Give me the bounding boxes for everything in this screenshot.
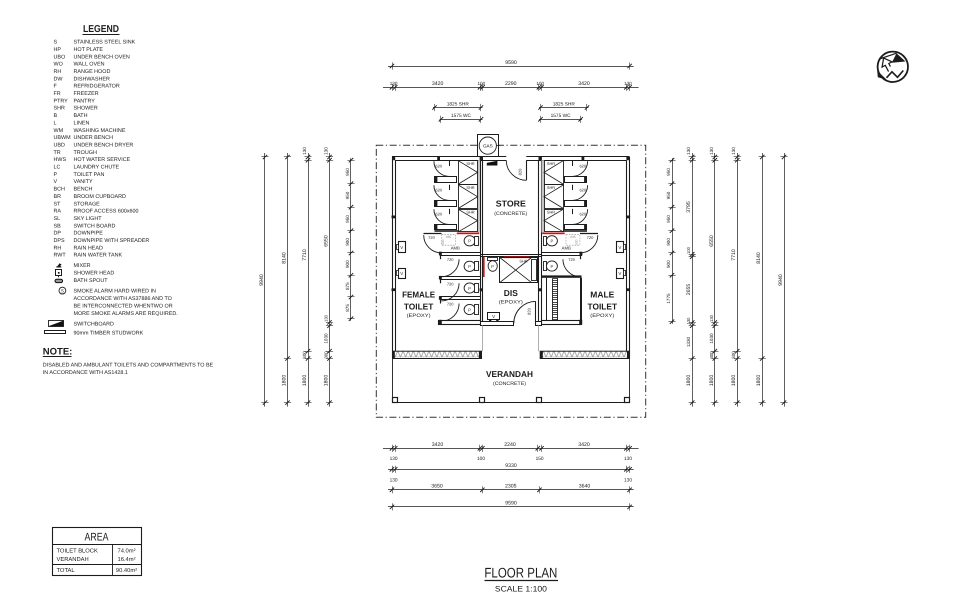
svg-text:LEGEND: LEGEND <box>83 24 119 35</box>
svg-text:3795: 3795 <box>686 201 692 213</box>
svg-text:9590: 9590 <box>505 60 517 66</box>
svg-text:(EPOXY): (EPOXY) <box>499 300 523 306</box>
svg-text:V: V <box>618 245 621 250</box>
svg-text:STORAGE: STORAGE <box>74 201 101 207</box>
svg-text:ST: ST <box>54 201 62 207</box>
svg-text:BCH: BCH <box>54 187 65 193</box>
svg-text:RH: RH <box>54 69 62 75</box>
svg-text:950: 950 <box>666 191 671 199</box>
svg-text:130: 130 <box>390 477 398 483</box>
svg-text:900: 900 <box>345 260 350 268</box>
svg-text:P: P <box>551 264 554 269</box>
svg-text:DOWNPIPE WITH SPREADER: DOWNPIPE WITH SPREADER <box>74 238 150 244</box>
svg-text:820: 820 <box>517 168 522 175</box>
svg-text:150: 150 <box>536 456 544 462</box>
svg-text:(CONCRETE): (CONCRETE) <box>493 381 526 387</box>
svg-text:BENCH: BENCH <box>74 187 93 193</box>
svg-text:620: 620 <box>435 163 442 168</box>
svg-text:100: 100 <box>477 81 485 86</box>
svg-text:NOTE:: NOTE: <box>43 347 73 358</box>
svg-text:(EPOXY): (EPOXY) <box>590 313 614 319</box>
svg-text:SHR: SHR <box>547 185 555 190</box>
svg-text:LC: LC <box>54 165 61 171</box>
svg-text:SHR: SHR <box>54 106 65 112</box>
svg-text:V: V <box>400 245 403 250</box>
svg-text:DISABLED AND AMBULANT TOILETS: DISABLED AND AMBULANT TOILETS AND COMPAR… <box>43 362 214 368</box>
svg-text:2290: 2290 <box>505 81 517 87</box>
svg-text:900: 900 <box>441 239 445 245</box>
svg-text:HOT WATER SERVICE: HOT WATER SERVICE <box>74 157 131 163</box>
svg-text:7710: 7710 <box>731 249 737 261</box>
svg-text:SHOWER HEAD: SHOWER HEAD <box>74 270 115 276</box>
svg-text:BROOM CUPBOARD: BROOM CUPBOARD <box>74 194 127 200</box>
svg-text:GAS: GAS <box>483 144 493 149</box>
svg-text:TOILET: TOILET <box>404 302 434 312</box>
svg-text:9590: 9590 <box>505 501 517 507</box>
svg-text:DW: DW <box>54 76 64 82</box>
svg-text:1800: 1800 <box>686 375 692 387</box>
svg-text:SB: SB <box>54 223 62 229</box>
svg-text:SHR: SHR <box>466 161 474 166</box>
svg-text:300: 300 <box>324 351 329 359</box>
svg-text:REFRIDGERATOR: REFRIDGERATOR <box>74 84 120 90</box>
svg-text:DISHWASHER: DISHWASHER <box>74 76 110 82</box>
svg-text:1800: 1800 <box>282 375 288 387</box>
svg-text:1800: 1800 <box>731 375 737 387</box>
svg-text:BE INTERCONNECTED WHENTWO OR: BE INTERCONNECTED WHENTWO OR <box>74 303 173 309</box>
svg-text:950: 950 <box>345 215 350 223</box>
svg-text:LAUNDRY CHUTE: LAUNDRY CHUTE <box>74 165 120 171</box>
svg-text:635: 635 <box>570 235 576 239</box>
svg-text:RA: RA <box>54 209 62 215</box>
svg-text:HOT PLATE: HOT PLATE <box>74 47 104 53</box>
svg-text:RAIN HEAD: RAIN HEAD <box>74 245 103 251</box>
svg-text:720: 720 <box>447 257 454 262</box>
svg-text:1775: 1775 <box>666 293 671 304</box>
svg-text:AREA: AREA <box>85 531 110 543</box>
svg-text:720: 720 <box>568 257 575 262</box>
svg-text:720: 720 <box>447 302 454 307</box>
svg-text:300: 300 <box>302 351 307 359</box>
svg-text:1330: 1330 <box>686 336 691 347</box>
svg-text:STORE: STORE <box>496 199 526 209</box>
svg-text:620: 620 <box>435 211 442 216</box>
svg-text:8140: 8140 <box>756 252 762 264</box>
svg-text:9940: 9940 <box>778 274 784 286</box>
svg-text:P: P <box>491 264 494 269</box>
svg-text:VERANDAH: VERANDAH <box>486 369 533 379</box>
svg-text:900: 900 <box>666 238 671 246</box>
svg-text:130: 130 <box>390 81 398 86</box>
svg-text:620: 620 <box>435 187 442 192</box>
svg-text:820: 820 <box>527 307 532 314</box>
svg-text:1825 SHR: 1825 SHR <box>447 101 470 107</box>
svg-text:WO: WO <box>54 62 63 68</box>
svg-text:HP: HP <box>54 47 62 53</box>
svg-text:P: P <box>54 172 58 178</box>
svg-text:8140: 8140 <box>282 252 288 264</box>
svg-text:V: V <box>492 314 495 319</box>
svg-text:SMOKE ALARM HARD WIRED IN: SMOKE ALARM HARD WIRED IN <box>74 288 156 294</box>
svg-text:6550: 6550 <box>709 235 715 247</box>
svg-text:1030: 1030 <box>709 333 714 344</box>
svg-text:(CONCRETE): (CONCRETE) <box>494 211 527 217</box>
svg-text:130: 130 <box>686 317 691 325</box>
svg-text:900: 900 <box>666 260 671 268</box>
svg-text:130: 130 <box>686 147 691 155</box>
svg-text:620: 620 <box>579 163 586 168</box>
svg-text:V: V <box>400 271 403 276</box>
svg-text:SHR: SHR <box>466 185 474 190</box>
svg-text:TOILET BLOCK: TOILET BLOCK <box>57 547 98 554</box>
svg-text:WALL OVEN: WALL OVEN <box>74 62 105 68</box>
svg-text:875: 875 <box>345 304 350 312</box>
svg-text:FR: FR <box>54 91 61 97</box>
svg-text:130: 130 <box>624 477 632 483</box>
svg-text:VANITY: VANITY <box>74 179 93 185</box>
svg-text:P: P <box>551 239 554 244</box>
svg-text:BATH: BATH <box>74 113 88 119</box>
svg-text:SHR: SHR <box>547 210 555 215</box>
svg-text:RANGE HOOD: RANGE HOOD <box>74 69 111 75</box>
svg-text:130: 130 <box>324 314 329 322</box>
svg-text:TOILET PAN: TOILET PAN <box>74 172 105 178</box>
svg-text:2305: 2305 <box>505 484 517 490</box>
svg-text:RWT: RWT <box>54 253 67 259</box>
svg-text:130: 130 <box>709 147 714 155</box>
svg-text:VERANDAH: VERANDAH <box>57 557 89 563</box>
svg-text:100: 100 <box>477 456 485 462</box>
svg-text:V: V <box>54 179 58 185</box>
svg-text:STAINLESS STEEL SINK: STAINLESS STEEL SINK <box>74 40 136 46</box>
svg-text:130: 130 <box>624 81 632 86</box>
svg-text:BR: BR <box>54 194 62 200</box>
svg-text:SHR: SHR <box>547 161 555 166</box>
svg-text:UNDER BENCH OVEN: UNDER BENCH OVEN <box>74 54 130 60</box>
svg-text:B: B <box>54 113 58 119</box>
svg-text:BATH SPOUT: BATH SPOUT <box>74 278 109 284</box>
svg-text:1030: 1030 <box>324 333 329 344</box>
svg-text:3420: 3420 <box>432 442 444 448</box>
svg-text:620: 620 <box>579 187 586 192</box>
svg-text:UNDER BENCH: UNDER BENCH <box>74 135 114 141</box>
svg-text:900: 900 <box>345 238 350 246</box>
svg-text:300: 300 <box>709 351 714 359</box>
svg-text:1575 WC: 1575 WC <box>551 113 572 119</box>
svg-text:IN ACCORDANCE WITH AS1428.1: IN ACCORDANCE WITH AS1428.1 <box>43 370 128 376</box>
svg-text:950: 950 <box>345 191 350 199</box>
svg-text:720: 720 <box>587 235 594 240</box>
svg-text:SCALE 1:100: SCALE 1:100 <box>495 584 548 593</box>
svg-text:90.40m²: 90.40m² <box>116 567 137 574</box>
svg-text:SHOWER: SHOWER <box>74 106 98 112</box>
svg-text:3420: 3420 <box>432 81 444 87</box>
svg-text:1575 WC: 1575 WC <box>451 113 472 119</box>
svg-text:SKY LIGHT: SKY LIGHT <box>74 216 103 222</box>
svg-text:MALE: MALE <box>590 290 614 300</box>
svg-text:HWS: HWS <box>54 157 67 163</box>
svg-text:1800: 1800 <box>709 375 715 387</box>
svg-text:P: P <box>468 307 471 312</box>
svg-text:(EPOXY): (EPOXY) <box>407 313 431 319</box>
svg-text:RH: RH <box>54 245 62 251</box>
svg-text:FLOOR PLAN: FLOOR PLAN <box>484 564 557 580</box>
svg-text:720: 720 <box>428 235 435 240</box>
svg-text:9940: 9940 <box>259 274 265 286</box>
svg-text:SWITCH BOARD: SWITCH BOARD <box>74 223 116 229</box>
svg-text:130: 130 <box>709 314 714 322</box>
svg-text:MIXER: MIXER <box>74 263 91 269</box>
svg-text:SHR: SHR <box>519 259 527 264</box>
svg-text:TOILET: TOILET <box>588 302 618 312</box>
svg-text:WASHING MACHINE: WASHING MACHINE <box>74 128 126 134</box>
svg-text:UBD: UBD <box>54 143 65 149</box>
svg-text:635: 635 <box>446 235 452 239</box>
svg-text:UBO: UBO <box>54 54 66 60</box>
svg-text:S: S <box>61 288 64 293</box>
svg-text:SHR: SHR <box>466 210 474 215</box>
svg-text:PTRY: PTRY <box>54 98 69 104</box>
svg-text:P: P <box>468 264 471 269</box>
svg-text:3420: 3420 <box>578 442 590 448</box>
svg-text:P: P <box>468 239 471 244</box>
svg-text:9330: 9330 <box>505 463 517 469</box>
svg-text:3420: 3420 <box>578 81 590 87</box>
svg-text:1800: 1800 <box>756 375 762 387</box>
svg-text:3640: 3640 <box>579 484 591 490</box>
svg-text:90mm TIMBER STUDWORK: 90mm TIMBER STUDWORK <box>74 330 144 336</box>
svg-text:7710: 7710 <box>302 249 308 261</box>
svg-text:UBWM: UBWM <box>54 135 72 141</box>
svg-text:P: P <box>468 286 471 291</box>
svg-text:620: 620 <box>579 211 586 216</box>
svg-text:130: 130 <box>624 456 632 462</box>
svg-text:130: 130 <box>302 147 307 155</box>
svg-text:100: 100 <box>536 81 544 86</box>
svg-text:720: 720 <box>447 281 454 286</box>
svg-text:ACCORDANCE WITH AS37886 AND TO: ACCORDANCE WITH AS37886 AND TO <box>74 296 172 302</box>
svg-text:1825 SHR: 1825 SHR <box>553 101 576 107</box>
svg-text:RAIN WATER TANK: RAIN WATER TANK <box>74 253 123 259</box>
svg-text:16.4m²: 16.4m² <box>117 556 135 563</box>
svg-text:130: 130 <box>324 147 329 155</box>
svg-text:100: 100 <box>686 246 691 254</box>
svg-text:AMB: AMB <box>562 246 571 251</box>
svg-text:130: 130 <box>390 456 398 462</box>
svg-text:MORE SMOKE ALARMS ARE REQUIRED: MORE SMOKE ALARMS ARE REQUIRED. <box>74 311 178 317</box>
svg-text:74.0m²: 74.0m² <box>117 547 135 554</box>
svg-text:3650: 3650 <box>431 484 443 490</box>
svg-text:DPS: DPS <box>54 238 65 244</box>
svg-text:S: S <box>54 40 58 46</box>
svg-text:130: 130 <box>731 147 736 155</box>
svg-text:900: 900 <box>575 239 579 245</box>
svg-text:UNDER BENCH DRYER: UNDER BENCH DRYER <box>74 143 134 149</box>
svg-text:1800: 1800 <box>324 375 330 387</box>
svg-text:950: 950 <box>345 168 350 176</box>
svg-text:DP: DP <box>54 231 62 237</box>
svg-text:FEMALE: FEMALE <box>402 290 435 300</box>
svg-text:L: L <box>54 120 57 126</box>
svg-text:RROOF ACCESS 600x600: RROOF ACCESS 600x600 <box>74 209 139 215</box>
svg-text:2655: 2655 <box>686 284 692 296</box>
svg-text:TR: TR <box>54 150 61 156</box>
svg-text:AMB: AMB <box>451 246 460 251</box>
svg-text:LINEN: LINEN <box>74 120 90 126</box>
svg-text:TROUGH: TROUGH <box>74 150 97 156</box>
svg-text:WM: WM <box>54 128 64 134</box>
svg-text:1800: 1800 <box>302 375 308 387</box>
svg-text:SWITCHBOARD: SWITCHBOARD <box>74 321 115 327</box>
svg-text:DIS: DIS <box>504 288 518 298</box>
svg-text:SL: SL <box>54 216 61 222</box>
svg-text:DOWNPIPE: DOWNPIPE <box>74 231 104 237</box>
svg-text:300: 300 <box>731 351 736 359</box>
svg-text:6550: 6550 <box>324 235 330 247</box>
svg-text:875: 875 <box>345 282 350 290</box>
svg-text:PANTRY: PANTRY <box>74 98 96 104</box>
svg-text:950: 950 <box>666 168 671 176</box>
svg-text:TOTAL: TOTAL <box>57 567 76 574</box>
svg-text:2240: 2240 <box>504 442 516 448</box>
svg-text:V: V <box>618 271 621 276</box>
svg-text:950: 950 <box>666 215 671 223</box>
svg-text:FREEZER: FREEZER <box>74 91 99 97</box>
